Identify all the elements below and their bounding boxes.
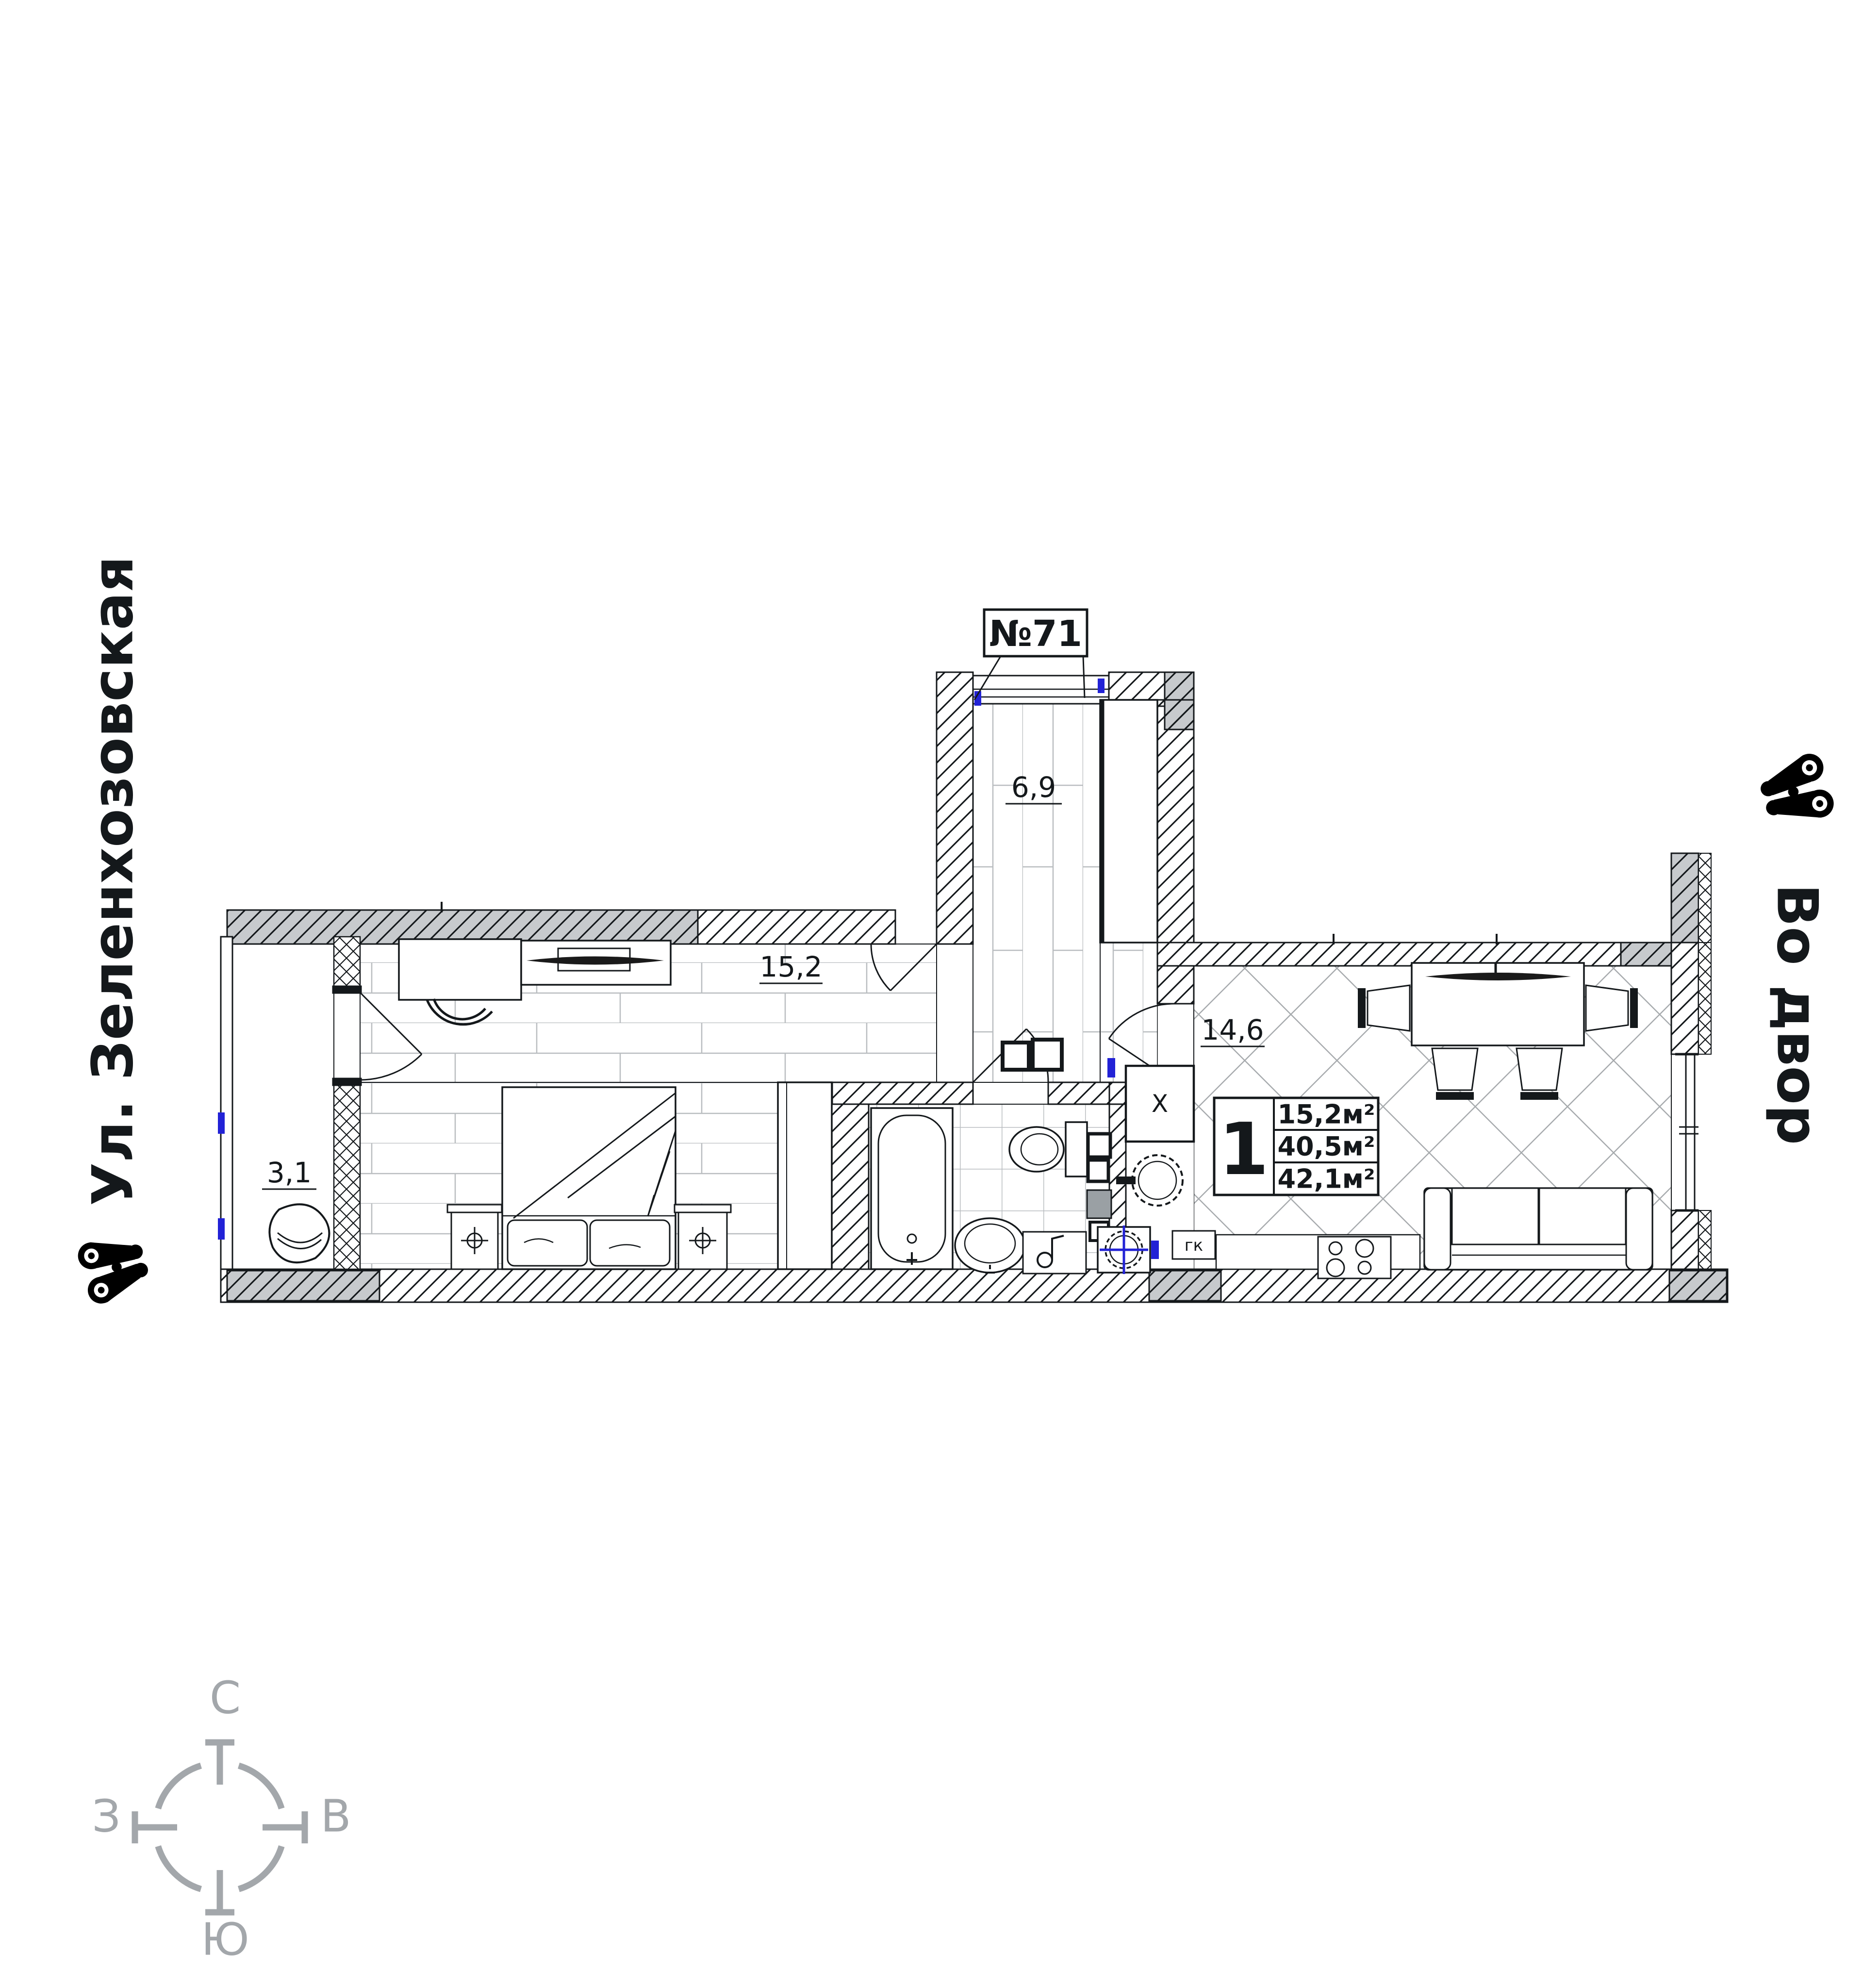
compass-ring xyxy=(133,1741,306,1914)
sofa-armrest-right xyxy=(1626,1188,1652,1270)
shaft-label: X xyxy=(1152,1090,1168,1118)
compass-east-label: В xyxy=(320,1790,351,1842)
kitchen-right-window xyxy=(1675,1054,1698,1210)
sofa-armrest-left xyxy=(1424,1188,1451,1270)
right-wall-lower-insulation xyxy=(1698,1210,1711,1271)
right-wall-upper-insulation xyxy=(1698,943,1711,1054)
compass-north-label: С xyxy=(210,1672,241,1724)
desk xyxy=(399,939,521,1000)
window-tick-blue xyxy=(1098,679,1105,693)
apartment-number: №71 xyxy=(989,613,1082,655)
bottom-wall-gray-right xyxy=(1669,1271,1727,1301)
chair-left-back xyxy=(1358,988,1366,1028)
info-area: 40,5м² xyxy=(1277,1131,1375,1162)
pillow-left xyxy=(508,1220,587,1266)
bathroom-left-wall xyxy=(832,1104,869,1269)
kitchen-top-wall-gray xyxy=(1621,943,1671,966)
bottom-wall xyxy=(221,1269,1728,1302)
partition-sill-top xyxy=(333,986,361,993)
info-living-area: 15,2м² xyxy=(1277,1099,1375,1130)
balcony-partition-bottom xyxy=(334,1080,360,1269)
pillow-right xyxy=(590,1220,670,1266)
hall-kitchen-wall xyxy=(1157,966,1194,1004)
chair-left xyxy=(1368,985,1410,1031)
chair-bottom-2-back xyxy=(1520,1092,1558,1100)
sink-inner xyxy=(965,1224,1015,1263)
compass: С В З Ю xyxy=(92,1672,351,1966)
toilet-bowl-inner xyxy=(1021,1134,1058,1165)
chair-bottom-2 xyxy=(1517,1048,1562,1090)
bedroom-area-label: 15,2 xyxy=(759,950,822,983)
compass-south-label: Ю xyxy=(201,1914,249,1966)
binoculars-courtyard-icon xyxy=(1755,750,1837,831)
binoculars-street-icon xyxy=(75,1229,154,1307)
kitchen-sink xyxy=(1132,1155,1183,1206)
chair-right-back xyxy=(1630,988,1638,1028)
info-table: 1 15,2м² 40,5м² 42,1м² xyxy=(1214,1098,1378,1195)
corridor-right-wall xyxy=(1157,700,1194,943)
bathroom-top-wall-left xyxy=(832,1082,973,1104)
sofa-cushion-2 xyxy=(1539,1188,1626,1244)
kitchen-area-label: 14,6 xyxy=(1201,1013,1264,1046)
chair-bottom-1 xyxy=(1432,1048,1478,1090)
compass-west-label: З xyxy=(92,1790,121,1842)
washer-blue-tick xyxy=(1151,1241,1159,1259)
hallway-area-label: 6,9 xyxy=(1011,771,1056,804)
compass-north-tick xyxy=(205,1741,234,1785)
hallway-floor xyxy=(973,700,1100,1082)
courtyard-label: Во двор xyxy=(1764,884,1830,1145)
bathtub-drain xyxy=(907,1234,916,1243)
bottom-wall-gray-mid xyxy=(1149,1271,1221,1301)
bottom-wall-gray-left xyxy=(227,1271,379,1301)
corridor-top-window xyxy=(973,676,1109,706)
compass-south-tick xyxy=(205,1870,234,1914)
kitchen-sink-tap xyxy=(1116,1176,1136,1184)
sofa-cushion-1 xyxy=(1452,1188,1538,1244)
corridor-wardrobe xyxy=(1100,700,1157,943)
bedroom-wardrobe xyxy=(778,1082,832,1269)
chair-right xyxy=(1586,985,1628,1031)
corridor-left-wall xyxy=(937,672,973,944)
right-wall-lower xyxy=(1671,1210,1698,1271)
info-rooms-count: 1 xyxy=(1219,1108,1269,1191)
stove xyxy=(1318,1237,1391,1278)
gas-boiler-label: гк xyxy=(1185,1236,1203,1255)
balcony-partition-top xyxy=(334,937,360,991)
top-wall-white xyxy=(698,910,895,944)
info-total-area: 42,1м² xyxy=(1277,1164,1375,1194)
chair-bottom-1-back xyxy=(1436,1092,1474,1100)
floor-plan-svg: X гк xyxy=(0,0,1863,1988)
toilet-tank xyxy=(1066,1122,1087,1176)
nightstand-left-cap xyxy=(447,1205,502,1212)
street-label: Ул. Зеленхозовская xyxy=(81,556,146,1206)
right-wall-top-stub xyxy=(1671,853,1698,943)
shaft-box: X xyxy=(1126,1066,1194,1142)
nightstand-right-cap xyxy=(675,1205,731,1212)
right-wall-upper xyxy=(1671,943,1698,1054)
floorplan-page: X гк xyxy=(0,0,1863,1988)
compass-east-tick xyxy=(263,1811,306,1843)
balcony-chair-icon xyxy=(269,1204,329,1262)
balcony-area-label: 3,1 xyxy=(267,1156,312,1189)
gas-boiler-box: гк xyxy=(1172,1231,1215,1259)
compass-west-tick xyxy=(133,1811,177,1843)
partition-sill-bottom xyxy=(333,1078,361,1085)
right-wall-top-insulation xyxy=(1698,853,1711,943)
